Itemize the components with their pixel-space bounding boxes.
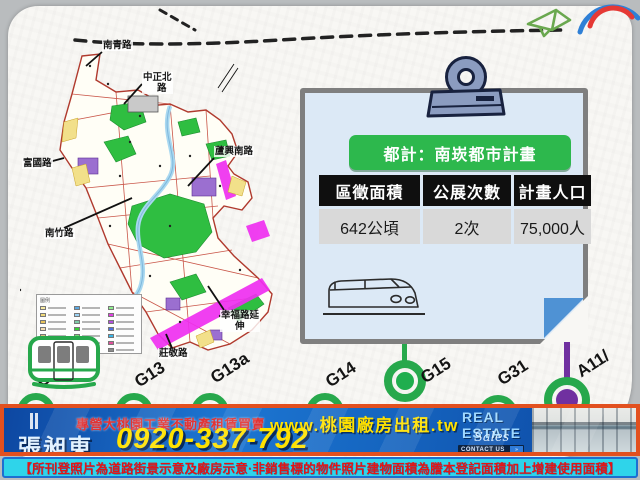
legend-chip xyxy=(108,326,139,332)
ad-banner: 專營大桃園工業不動產租賃買賣 www.桃園廠房出租.tw 張昶東 0920-33… xyxy=(0,404,640,456)
contact-us-button[interactable]: CONTACT US » xyxy=(458,445,524,454)
legend-chip xyxy=(40,319,71,325)
road-label-luxingnan: 蘆興南路 xyxy=(214,146,254,157)
fold-white-triangle xyxy=(540,296,588,344)
train-sketch-icon xyxy=(321,271,429,319)
legend-chip xyxy=(40,312,71,318)
header-exhibitions: 公展次數 xyxy=(423,175,511,206)
disclaimer-text: 【所刊登照片為道路街景示意及廠房示意·非銷售標的物件照片建物面積為謄本登記面積加… xyxy=(19,458,620,477)
legend-chip xyxy=(108,305,139,311)
legend-chip xyxy=(108,333,139,339)
gray-block xyxy=(128,96,158,112)
legend-chip xyxy=(74,312,105,318)
clipboard-board: 都計：南崁都市計畫 區徵面積 公展次數 計畫人口 642公頃 2次 75,000… xyxy=(300,88,588,344)
plan-title: 都計：南崁都市計畫 xyxy=(383,141,536,165)
table-header-row: 區徵面積 公展次數 計畫人口 xyxy=(319,175,591,206)
road-label-zhongzhengbei: 中正北路 xyxy=(142,72,173,94)
road-label-xingfu-ext: 幸福路延伸 xyxy=(220,310,260,332)
legend-chip xyxy=(40,305,71,311)
legend-chip xyxy=(108,340,139,346)
road-label-nanqing: 南青路 xyxy=(102,40,133,51)
metro-train-icon xyxy=(26,334,102,392)
road-label-fuguo: 富國路 xyxy=(22,158,53,169)
folded-corner xyxy=(540,296,588,344)
legend-chip xyxy=(74,326,105,332)
table-data-row: 642公頃 2次 75,000人 xyxy=(319,209,591,244)
legend-chip xyxy=(108,312,139,318)
legend-chip xyxy=(108,347,139,353)
plan-info-table: 區徵面積 公展次數 計畫人口 642公頃 2次 75,000人 xyxy=(319,175,591,244)
road-label-nanzhu: 南竹路 xyxy=(44,228,75,239)
legend-chip xyxy=(74,305,105,311)
value-population: 75,000人 xyxy=(514,209,591,244)
binder-clip-icon xyxy=(418,56,514,122)
paper-plane-logo xyxy=(520,0,640,62)
legend-chip xyxy=(40,326,71,332)
banner-divider-marks xyxy=(30,413,38,429)
paper-plane-icon xyxy=(528,10,570,36)
warehouse-photo xyxy=(532,408,640,452)
contact-arrow-chip: » xyxy=(510,446,523,453)
value-exhibitions: 2次 xyxy=(423,209,511,244)
plan-title-badge: 都計：南崁都市計畫 xyxy=(349,135,571,170)
legend-chip xyxy=(74,319,105,325)
agent-phone[interactable]: 0920-337-792 xyxy=(116,423,309,456)
brand-sales-script: Sales xyxy=(474,430,509,445)
header-population: 計畫人口 xyxy=(514,175,591,206)
contact-us-label: CONTACT US xyxy=(461,447,505,453)
disclaimer-bar: 【所刊登照片為道路街景示意及廠房示意·非銷售標的物件照片建物面積為謄本登記面積加… xyxy=(2,457,638,478)
legend-chip xyxy=(108,319,139,325)
legend-title: 圖例 xyxy=(40,298,139,304)
header-area: 區徵面積 xyxy=(319,175,420,206)
agent-name: 張昶東 xyxy=(18,428,93,456)
value-area: 642公頃 xyxy=(319,209,420,244)
road-label-zhuangjing: 莊敬路 xyxy=(158,348,189,359)
brand-real: REAL xyxy=(456,408,532,424)
